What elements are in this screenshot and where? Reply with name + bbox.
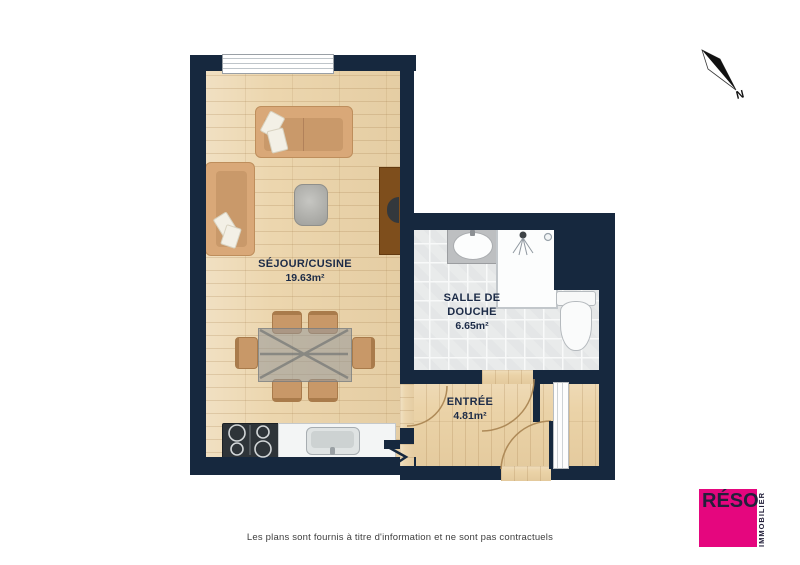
dining-chair bbox=[308, 379, 338, 402]
entree-floor bbox=[400, 374, 604, 474]
wall-bathroom-bottom-right bbox=[533, 370, 605, 384]
dining-table bbox=[258, 328, 352, 382]
coffee-table bbox=[294, 184, 328, 226]
bathroom-door-threshold bbox=[482, 370, 533, 384]
floor-plan-page: SÉJOUR/CUSINE 19.63m² SALLE DE DOUCHE 6.… bbox=[0, 0, 800, 565]
faucet bbox=[330, 447, 335, 455]
wall-entree-bottom-left bbox=[400, 466, 501, 480]
kitchen-counter bbox=[278, 423, 396, 459]
sofa bbox=[255, 106, 353, 158]
room-label-sejour: SÉJOUR/CUSINE 19.63m² bbox=[245, 258, 365, 285]
window bbox=[222, 54, 334, 74]
tv-cabinet bbox=[379, 167, 401, 255]
room-area: 19.63m² bbox=[245, 272, 365, 285]
washbasin bbox=[447, 228, 499, 264]
stove bbox=[222, 423, 280, 459]
tap bbox=[470, 230, 475, 236]
room-label-douche: SALLE DE DOUCHE 6.65m² bbox=[434, 292, 510, 333]
disclaimer-text: Les plans sont fournis à titre d'informa… bbox=[0, 532, 800, 543]
opening-threshold bbox=[400, 444, 414, 466]
room-name: SÉJOUR/CUSINE bbox=[245, 258, 365, 272]
sejour-door-threshold bbox=[400, 384, 414, 428]
utility-block bbox=[554, 228, 603, 290]
room-label-entree: ENTRÉE 4.81m² bbox=[430, 396, 510, 423]
logo-brand-text: RÉSO bbox=[702, 490, 759, 513]
room-area: 6.65m² bbox=[434, 320, 510, 333]
kitchen-sink bbox=[306, 427, 360, 455]
armchair bbox=[205, 162, 255, 256]
wall-bathroom-bottom-left bbox=[410, 370, 482, 384]
wall-mid-stub bbox=[400, 428, 414, 444]
wall-right bbox=[599, 213, 615, 480]
room-name: SALLE DE DOUCHE bbox=[434, 292, 510, 320]
wall-left bbox=[190, 55, 206, 475]
room-area: 4.81m² bbox=[430, 410, 510, 423]
closet bbox=[553, 382, 569, 469]
wall-bottom-sejour bbox=[190, 457, 416, 475]
dining-chair bbox=[235, 337, 258, 369]
room-name: ENTRÉE bbox=[430, 396, 510, 410]
dining-chair bbox=[272, 379, 302, 402]
north-arrow-icon: N bbox=[702, 50, 745, 102]
dining-chair bbox=[352, 337, 375, 369]
north-label: N bbox=[735, 88, 746, 102]
wall-opening-stub bbox=[384, 440, 400, 449]
toilet-bowl bbox=[560, 301, 592, 351]
wall-closet-stub bbox=[533, 384, 540, 422]
entry-door-threshold bbox=[501, 466, 551, 481]
tv bbox=[387, 197, 399, 223]
wall-opening-stub bbox=[384, 465, 400, 474]
